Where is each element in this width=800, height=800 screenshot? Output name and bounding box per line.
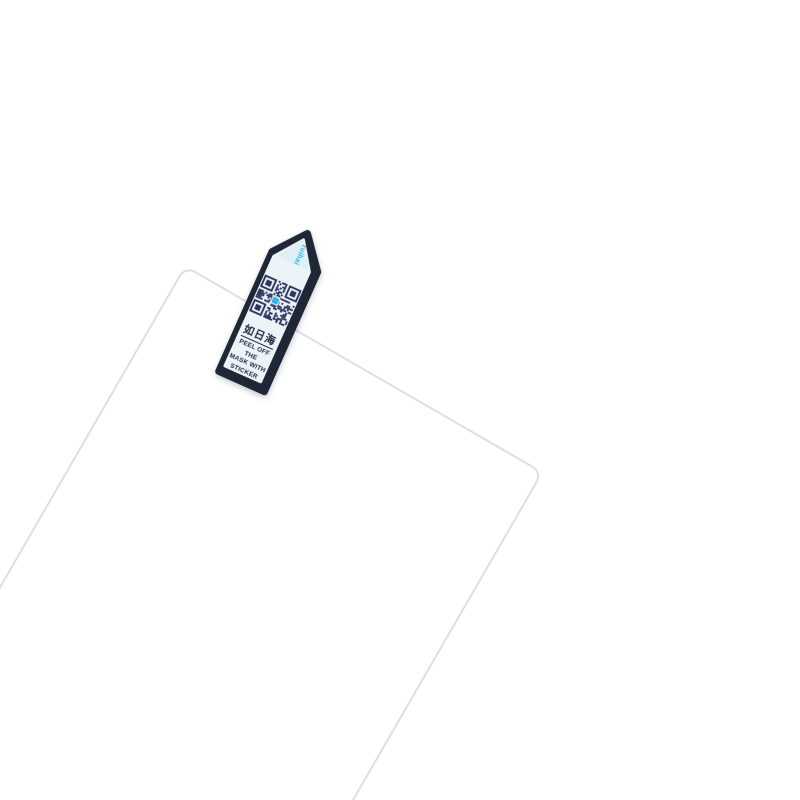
product-photo: ruihai 如日海 PEEL OFF THE MASK WITH STICKE… bbox=[0, 0, 800, 800]
